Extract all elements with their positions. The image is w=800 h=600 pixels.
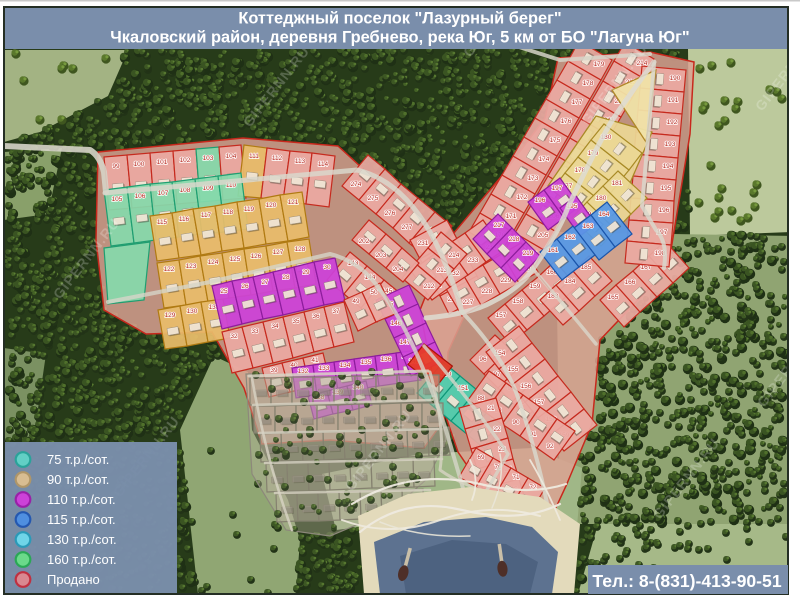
svg-text:101: 101 bbox=[157, 159, 168, 166]
svg-text:275: 275 bbox=[368, 195, 379, 202]
svg-text:110 т.р./сот.: 110 т.р./сот. bbox=[47, 492, 116, 507]
svg-text:192: 192 bbox=[667, 119, 678, 126]
svg-text:121: 121 bbox=[288, 199, 299, 206]
svg-text:105: 105 bbox=[112, 196, 123, 203]
svg-text:277: 277 bbox=[402, 224, 413, 231]
svg-text:117: 117 bbox=[201, 212, 212, 219]
svg-text:195: 195 bbox=[661, 185, 672, 192]
svg-text:178: 178 bbox=[583, 80, 594, 87]
svg-text:114: 114 bbox=[318, 161, 329, 168]
svg-text:181: 181 bbox=[612, 180, 623, 187]
svg-text:202: 202 bbox=[359, 238, 370, 245]
svg-text:35: 35 bbox=[292, 318, 300, 325]
svg-text:203: 203 bbox=[376, 252, 387, 259]
svg-text:174: 174 bbox=[539, 156, 550, 163]
svg-text:274: 274 bbox=[351, 181, 362, 188]
svg-text:100: 100 bbox=[134, 161, 145, 168]
svg-text:173: 173 bbox=[528, 175, 539, 182]
svg-text:Коттеджный поселок "Лазурный б: Коттеджный поселок "Лазурный берег" bbox=[238, 10, 561, 28]
svg-text:160 т.р./сот.: 160 т.р./сот. bbox=[47, 552, 117, 567]
svg-text:130 т.р./сот.: 130 т.р./сот. bbox=[47, 532, 117, 547]
svg-text:165: 165 bbox=[608, 294, 619, 301]
svg-text:118: 118 bbox=[223, 209, 234, 216]
svg-text:115 т.р./сот.: 115 т.р./сот. bbox=[47, 512, 116, 527]
svg-text:204: 204 bbox=[393, 266, 404, 273]
svg-text:30: 30 bbox=[323, 264, 331, 271]
svg-text:120: 120 bbox=[266, 202, 277, 209]
svg-text:71: 71 bbox=[512, 474, 520, 481]
svg-text:25: 25 bbox=[220, 288, 228, 295]
svg-text:129: 129 bbox=[165, 312, 176, 319]
svg-text:125: 125 bbox=[230, 256, 241, 263]
svg-text:111: 111 bbox=[249, 153, 259, 160]
svg-text:21: 21 bbox=[487, 405, 495, 412]
svg-text:218: 218 bbox=[509, 236, 520, 243]
svg-text:Продано: Продано bbox=[47, 572, 100, 587]
svg-text:28: 28 bbox=[282, 274, 290, 281]
svg-text:177: 177 bbox=[572, 99, 583, 106]
svg-text:233: 233 bbox=[468, 257, 479, 264]
svg-text:90: 90 bbox=[512, 419, 520, 426]
svg-text:214: 214 bbox=[449, 252, 460, 259]
svg-text:124: 124 bbox=[208, 259, 219, 266]
svg-text:175: 175 bbox=[550, 137, 561, 144]
svg-text:50: 50 bbox=[370, 289, 378, 296]
svg-text:96: 96 bbox=[479, 356, 487, 363]
svg-text:231: 231 bbox=[418, 240, 429, 247]
svg-text:104: 104 bbox=[226, 153, 237, 160]
svg-text:103: 103 bbox=[203, 155, 214, 162]
svg-text:158: 158 bbox=[513, 298, 524, 305]
svg-text:227: 227 bbox=[463, 299, 474, 306]
svg-text:228: 228 bbox=[482, 288, 493, 295]
svg-text:205: 205 bbox=[538, 232, 549, 239]
svg-text:196: 196 bbox=[535, 197, 546, 204]
svg-text:102: 102 bbox=[180, 157, 191, 164]
svg-text:193: 193 bbox=[665, 141, 676, 148]
svg-text:127: 127 bbox=[273, 249, 284, 256]
svg-text:229: 229 bbox=[501, 277, 512, 284]
svg-text:166: 166 bbox=[625, 279, 636, 286]
svg-text:113: 113 bbox=[295, 158, 306, 165]
svg-text:107: 107 bbox=[158, 190, 169, 197]
svg-text:191: 191 bbox=[668, 97, 679, 104]
svg-text:162: 162 bbox=[565, 234, 576, 241]
svg-text:33: 33 bbox=[251, 328, 259, 335]
svg-text:180: 180 bbox=[596, 195, 607, 202]
svg-text:134: 134 bbox=[340, 362, 351, 369]
svg-text:133: 133 bbox=[319, 365, 330, 372]
svg-text:128: 128 bbox=[295, 246, 306, 253]
svg-text:163: 163 bbox=[583, 223, 594, 230]
svg-text:122: 122 bbox=[164, 266, 175, 273]
svg-text:190: 190 bbox=[670, 75, 681, 82]
svg-text:69: 69 bbox=[477, 454, 485, 461]
svg-text:90 т.р./сот.: 90 т.р./сот. bbox=[47, 472, 109, 487]
svg-text:106: 106 bbox=[135, 193, 146, 200]
svg-text:179: 179 bbox=[594, 61, 605, 68]
svg-text:92: 92 bbox=[546, 443, 554, 450]
svg-text:276: 276 bbox=[385, 210, 396, 217]
svg-text:184: 184 bbox=[565, 278, 576, 285]
svg-text:172: 172 bbox=[517, 194, 528, 201]
svg-text:164: 164 bbox=[599, 211, 610, 218]
svg-text:123: 123 bbox=[186, 263, 197, 270]
svg-text:119: 119 bbox=[244, 206, 255, 213]
svg-text:171: 171 bbox=[506, 213, 517, 220]
svg-text:155: 155 bbox=[508, 366, 519, 373]
svg-text:Чкаловский район, деревня Греб: Чкаловский район, деревня Гребнево, река… bbox=[110, 29, 689, 47]
svg-text:27: 27 bbox=[261, 279, 269, 286]
svg-text:116: 116 bbox=[179, 216, 190, 223]
svg-text:194: 194 bbox=[663, 163, 674, 170]
svg-text:156: 156 bbox=[521, 383, 532, 390]
svg-text:112: 112 bbox=[272, 155, 283, 162]
svg-text:176: 176 bbox=[561, 118, 572, 125]
svg-text:99: 99 bbox=[112, 163, 120, 170]
svg-text:Тел.: 8-(831)-413-90-51: Тел.: 8-(831)-413-90-51 bbox=[592, 571, 781, 591]
svg-text:32: 32 bbox=[230, 333, 238, 340]
svg-text:217: 217 bbox=[494, 222, 505, 229]
svg-text:34: 34 bbox=[271, 323, 279, 330]
svg-text:197: 197 bbox=[552, 185, 563, 192]
svg-text:157: 157 bbox=[496, 312, 507, 319]
svg-text:212: 212 bbox=[424, 283, 435, 290]
svg-text:130: 130 bbox=[187, 308, 198, 315]
svg-text:39: 39 bbox=[270, 367, 278, 374]
svg-text:26: 26 bbox=[241, 283, 249, 290]
svg-text:75 т.р./сот.: 75 т.р./сот. bbox=[47, 452, 109, 467]
svg-text:136: 136 bbox=[381, 356, 392, 363]
svg-text:159: 159 bbox=[530, 283, 541, 290]
svg-text:29: 29 bbox=[302, 269, 310, 276]
svg-text:135: 135 bbox=[361, 359, 372, 366]
svg-text:41: 41 bbox=[311, 357, 319, 364]
svg-text:126: 126 bbox=[251, 253, 262, 260]
svg-text:36: 36 bbox=[312, 313, 320, 320]
svg-text:37: 37 bbox=[332, 308, 340, 315]
svg-text:196: 196 bbox=[659, 207, 670, 214]
svg-text:219: 219 bbox=[523, 250, 534, 257]
svg-text:22: 22 bbox=[493, 426, 501, 433]
svg-text:115: 115 bbox=[157, 219, 168, 226]
svg-text:49: 49 bbox=[352, 298, 360, 305]
